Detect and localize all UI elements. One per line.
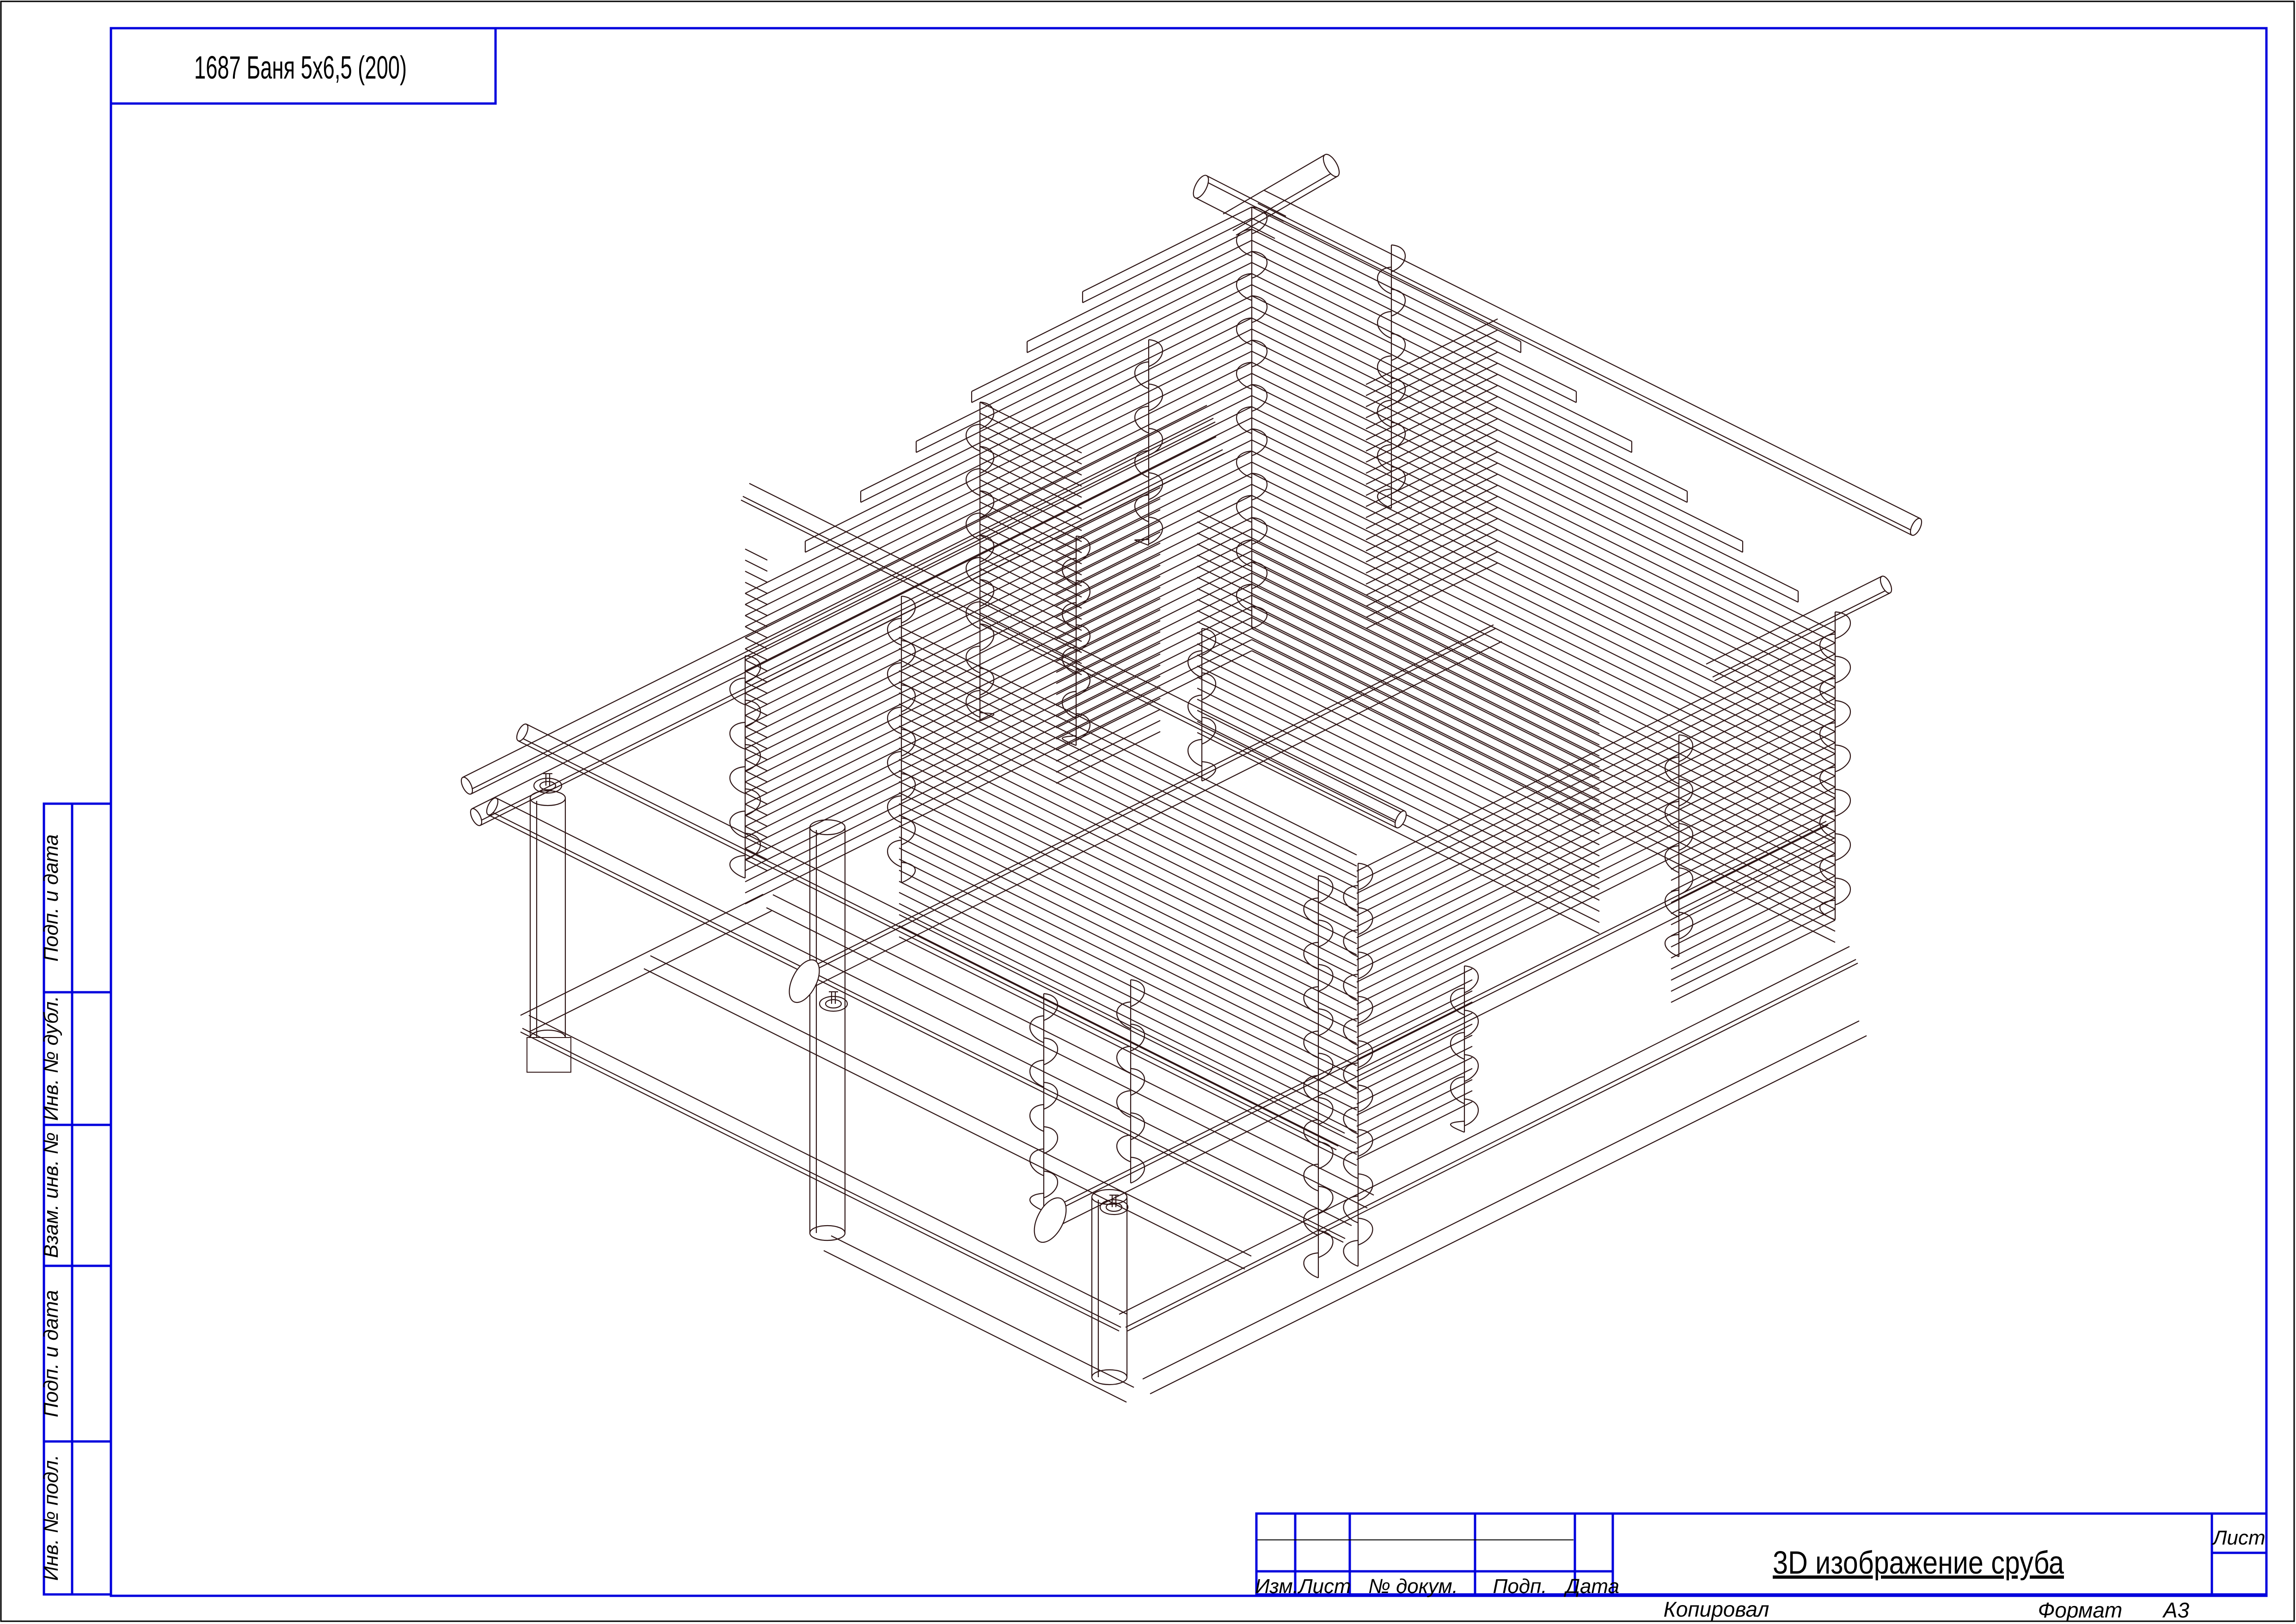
svg-text:Лист: Лист: [1297, 1575, 1351, 1598]
svg-text:№ докум.: № докум.: [1368, 1575, 1458, 1598]
svg-text:Инв. № дубл.: Инв. № дубл.: [40, 996, 62, 1121]
svg-text:Подп. и дата: Подп. и дата: [40, 1290, 62, 1417]
svg-text:Подп.: Подп.: [1493, 1575, 1547, 1598]
svg-text:Дата: Дата: [1563, 1575, 1619, 1598]
svg-text:Лист: Лист: [2211, 1526, 2265, 1549]
svg-text:Взам. инв. №: Взам. инв. №: [40, 1132, 62, 1258]
svg-text:1687 Баня 5х6,5 (200): 1687 Баня 5х6,5 (200): [194, 49, 407, 85]
svg-text:Копировал: Копировал: [1664, 1597, 1769, 1621]
svg-text:A3: A3: [2162, 1598, 2190, 1622]
svg-text:3D изображение сруба: 3D изображение сруба: [1773, 1545, 2064, 1581]
svg-text:Подп. и дата: Подп. и дата: [40, 834, 62, 961]
svg-text:Изм.: Изм.: [1255, 1575, 1298, 1598]
svg-text:Формат: Формат: [2038, 1598, 2123, 1622]
svg-text:Инв. № подл.: Инв. № подл.: [40, 1454, 62, 1581]
